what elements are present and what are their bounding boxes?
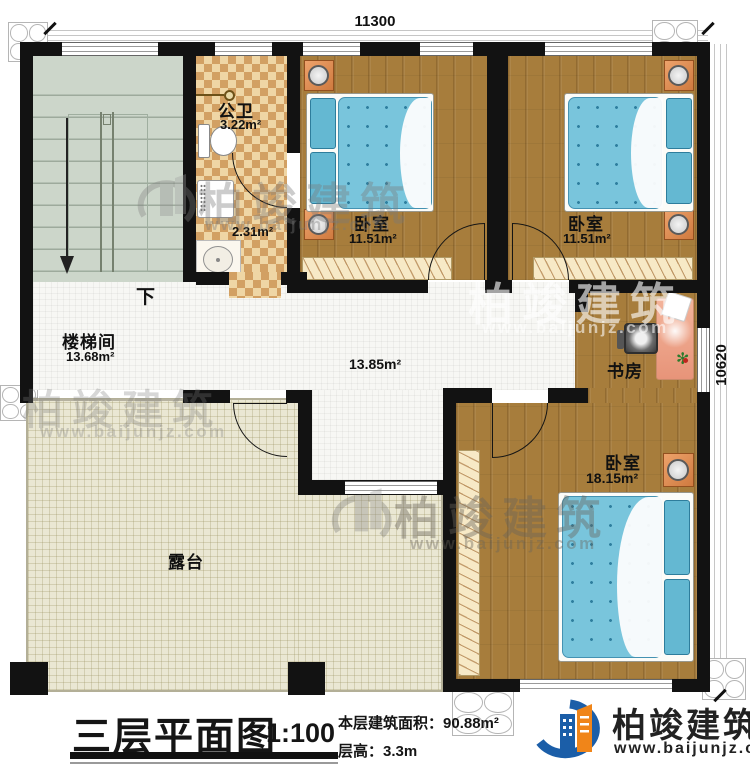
plant-center (683, 358, 688, 363)
hall-area: 13.85m² (349, 356, 401, 372)
nightstand-ornament (668, 65, 689, 86)
hall-floor-extension (312, 390, 443, 480)
wall-bedroom3-top (548, 388, 588, 403)
computer-stand (617, 330, 624, 349)
top-dimension-line (22, 40, 708, 41)
terrace-column (10, 662, 48, 695)
nightstand-ornament (668, 214, 689, 235)
wall-bedrooms-bottom (485, 280, 512, 293)
bedroom1-area: 11.51m² (349, 231, 397, 246)
bed-pillow (666, 98, 692, 149)
floor-height-label: 层高： (338, 743, 383, 760)
sink-drain (216, 258, 220, 262)
title-underline-thick (70, 752, 338, 759)
bedroom2-area: 11.51m² (563, 231, 611, 246)
wall-bedroom-divider (487, 56, 508, 280)
terrace-floor (298, 483, 443, 692)
bed-sheet-fold (400, 98, 431, 208)
window-top-bedroom2 (545, 42, 652, 56)
stair-direction-arrowhead (60, 256, 74, 274)
bed-pillow (664, 500, 690, 575)
hall-terrace-edge (33, 399, 183, 401)
washing-machine-panel (200, 184, 206, 213)
plan-scale: 1:100 (266, 718, 335, 749)
wall-hall-extension-left (298, 390, 312, 482)
stair-rail-cap (103, 114, 111, 125)
top-dimension-line (22, 30, 708, 31)
wall-bedrooms-bottom (287, 280, 428, 293)
dimension-tick (701, 22, 714, 35)
toilet-tank (198, 124, 210, 158)
wall-bathroom-bedroom1 (287, 56, 300, 153)
bed-pillow (666, 152, 692, 204)
wall-left (20, 42, 33, 403)
company-website: www.baijunjz.com (614, 740, 750, 758)
terrace-label: 露台 (168, 548, 204, 573)
wall-terrace-door (183, 390, 230, 403)
floor-area-label: 本层建筑面积： (338, 715, 443, 732)
top-dimension-line (22, 35, 708, 36)
wall-hall-study-stub (575, 280, 588, 312)
bedroom3-area: 18.15m² (586, 470, 638, 486)
stair-rail (100, 112, 114, 272)
wall-bedroom3-left (443, 403, 456, 692)
window-bedroom3-bottom (520, 679, 672, 692)
wall-bathroom-bottom (196, 272, 229, 285)
bathroom-door-threshold (229, 272, 281, 298)
window-top-stairwell (62, 42, 158, 56)
bed-pillow (310, 152, 336, 204)
floor-height-line: 层高：3.3m (338, 740, 417, 761)
stair-down-label: 下 (136, 282, 156, 309)
study-label: 书房 (607, 357, 643, 382)
wall-bedrooms-bottom (569, 280, 710, 293)
window-hall-bottom (345, 481, 437, 494)
bed-pillow (310, 98, 336, 149)
bed-pillow (664, 579, 690, 655)
bed-sheet-fold (631, 98, 663, 208)
window-top-bathroom (215, 42, 272, 56)
terrace-column (288, 662, 325, 695)
title-underline-thin (70, 762, 338, 764)
wall-terrace-door (286, 390, 312, 403)
stairwell-area: 13.68m² (66, 349, 114, 364)
nightstand-ornament (308, 214, 329, 235)
wall-bedroom3-top (443, 388, 492, 403)
stair-direction-line (66, 118, 68, 258)
company-logo-icon (530, 696, 606, 764)
window-top-bedroom1 (303, 42, 360, 56)
window-right-study (697, 328, 710, 392)
floor-plan-canvas: 11300 10620 (0, 0, 750, 766)
ceiling-lamp-line (196, 94, 224, 96)
wall-stairs-bathroom (183, 56, 196, 282)
top-dimension-label: 11300 (340, 13, 410, 29)
floor-area-value: 90.88m² (443, 715, 499, 732)
window-top-bedroom1b (420, 42, 473, 56)
wardrobe (458, 450, 480, 676)
floor-height-value: 3.3m (383, 743, 417, 760)
company-logo: 柏竣建筑 www.baijunjz.com (530, 696, 746, 764)
computer-monitor-icon (624, 323, 658, 354)
right-dimension-label: 10620 (713, 325, 731, 405)
floor-area-line: 本层建筑面积：90.88m² (338, 712, 499, 733)
nightstand-ornament (308, 65, 329, 86)
bathroom-area: 3.22m² (220, 117, 261, 132)
bathroom-sub-area: 2.31m² (232, 224, 273, 239)
wall-bathroom-bedroom1 (287, 208, 300, 282)
nightstand-ornament (667, 459, 689, 481)
